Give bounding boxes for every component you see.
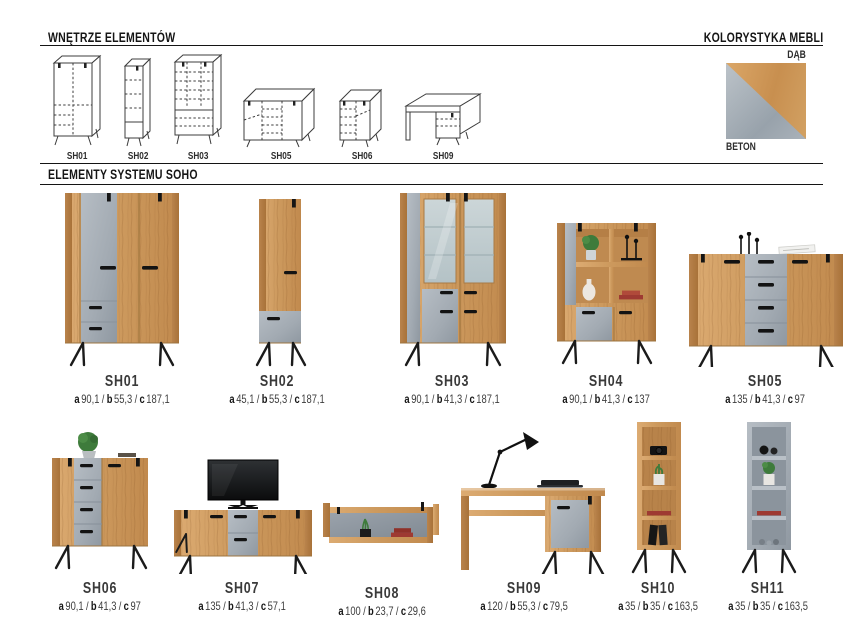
rule-top: [40, 45, 823, 46]
drawing-sh05: SH05: [240, 76, 322, 162]
product-card-sh10: SH10 a35/b35/c163,5: [598, 418, 718, 613]
product-card-sh03: SH03 a90,1/b41,3/c187,1: [365, 189, 540, 406]
hairpin-legs: [563, 341, 651, 363]
desk-photo: [437, 422, 612, 574]
magazine-decor: [778, 245, 814, 254]
hairpin-legs: [699, 346, 833, 367]
wall-shelf-photo: [317, 495, 447, 557]
books-decor: [118, 453, 136, 457]
drawing-sh09: SH09: [402, 86, 484, 162]
hairpin-legs: [71, 343, 173, 365]
product-dimensions: a90,1/b41,3/c137: [550, 392, 662, 406]
interior-drawings-row: SH01 SH02: [48, 52, 492, 162]
drawing-sh03: SH03: [170, 48, 226, 162]
product-code: SH11: [746, 580, 789, 598]
product-code: SH03: [430, 373, 474, 391]
narrow-shelf-concrete-photo: [731, 418, 806, 574]
oak-concrete-swatch: [726, 63, 806, 139]
oak-label: DĄB: [726, 49, 806, 61]
product-dimensions: a90,1/b41,3/c187,1: [391, 392, 513, 406]
rule-middle-bottom: [40, 184, 823, 185]
hairpin-legs: [406, 343, 500, 365]
display-cabinet-photo: [388, 189, 518, 367]
product-dimensions: a90,1/b41,3/c97: [47, 599, 152, 613]
product-dimensions: a90,1/b55,3/c187,1: [61, 392, 183, 406]
product-code: SH10: [636, 580, 680, 598]
product-code: SH09: [502, 580, 546, 598]
product-dimensions: a35/b35/c163,5: [717, 599, 819, 613]
drawing-sh01: SH01: [48, 48, 106, 162]
product-dimensions: a35/b35/c163,5: [607, 599, 709, 613]
color-swatch-block: DĄB BETON: [726, 49, 806, 153]
sideboard-photo: [681, 232, 851, 367]
section-title-elements: ELEMENTY SYSTEMU SOHO: [48, 167, 240, 182]
product-dimensions: a120/b55,3/c79,5: [468, 599, 580, 613]
drawing-sh06: SH06: [336, 76, 388, 162]
section-title-interiors: WNĘTRZE ELEMENTÓW: [48, 30, 211, 45]
book-decor: [647, 511, 671, 515]
tall-cabinet-photo: [237, 195, 317, 367]
hairpin-legs: [257, 343, 305, 365]
chest-wireframe-icon: [336, 76, 388, 148]
product-card-sh11: SH11 a35/b35/c163,5: [708, 418, 828, 613]
cabinet-wireframe-icon: [120, 48, 156, 148]
hairpin-legs: [56, 546, 146, 568]
hairpin-legs: [743, 550, 795, 572]
bookcase-photo: [549, 217, 664, 367]
concrete-label: BETON: [726, 141, 806, 153]
chest-photo: [40, 426, 160, 574]
narrow-shelf-oak-photo: [621, 418, 696, 574]
vitrine-wireframe-icon: [170, 48, 226, 148]
section-title-colors: KOLORYSTYKA MEBLI: [670, 30, 823, 45]
laptop-decor: [537, 480, 583, 488]
product-code: SH07: [220, 580, 264, 598]
catalog-page: WNĘTRZE ELEMENTÓW KOLORYSTYKA MEBLI SH01: [0, 0, 863, 637]
product-dimensions: a100/b23,7/c29,6: [326, 604, 438, 618]
desk-lamp-decor: [481, 432, 539, 488]
product-code: SH01: [100, 373, 144, 391]
candlestick-decor: [738, 232, 758, 254]
product-dimensions: a135/b41,3/c97: [714, 392, 816, 406]
product-code: SH04: [584, 373, 628, 391]
wardrobe-photo: [55, 189, 190, 367]
product-dimensions: a45,1/b55,3/c187,1: [216, 392, 338, 406]
camera-decor: [650, 446, 667, 455]
product-card-sh04: SH04 a90,1/b41,3/c137: [526, 217, 686, 406]
book-decor: [757, 511, 781, 515]
wardrobe-wireframe-icon: [48, 48, 106, 148]
product-code: SH02: [255, 373, 299, 391]
product-card-sh01: SH01 a90,1/b55,3/c187,1: [37, 189, 207, 406]
sideboard-wireframe-icon: [240, 76, 322, 148]
books-decor: [619, 291, 643, 300]
drawing-sh02: SH02: [120, 48, 156, 162]
books-decor: [391, 528, 413, 537]
tv-decor: [208, 460, 278, 508]
product-code: SH08: [360, 585, 404, 603]
product-code: SH05: [743, 373, 787, 391]
rule-middle-top: [40, 163, 823, 164]
hairpin-legs: [543, 552, 603, 574]
plant-decor: [78, 432, 98, 459]
product-code: SH06: [78, 580, 122, 598]
wall-shelf-spacer: [317, 495, 447, 579]
product-card-sh02: SH02 a45,1/b55,3/c187,1: [192, 195, 362, 406]
hairpin-legs: [633, 550, 685, 572]
tv-stand-photo: [168, 452, 318, 574]
product-card-sh09: SH09 a120/b55,3/c79,5: [437, 422, 612, 613]
product-card-sh05: SH05 a135/b41,3/c97: [678, 232, 853, 406]
product-dimensions: a135/b41,3/c57,1: [186, 599, 298, 613]
product-card-sh06: SH06 a90,1/b41,3/c97: [20, 426, 180, 613]
desk-wireframe-icon: [402, 86, 484, 148]
